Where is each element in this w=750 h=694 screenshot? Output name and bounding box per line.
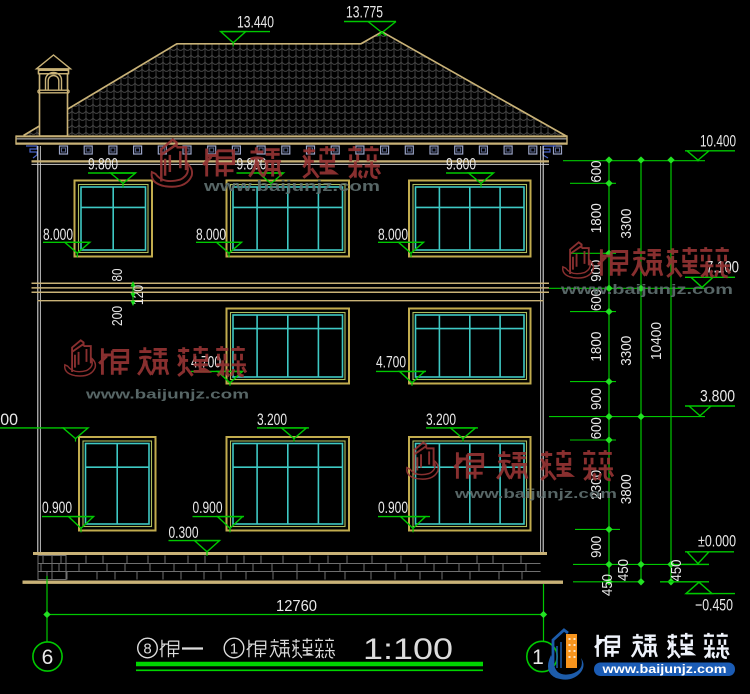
svg-text:8.000: 8.000 (43, 226, 73, 244)
svg-text:3.200: 3.200 (257, 411, 287, 429)
svg-text:0.300: 0.300 (169, 524, 199, 542)
svg-text:3.800: 3.800 (700, 388, 735, 406)
svg-text:450: 450 (615, 559, 632, 581)
svg-text:0.900: 0.900 (42, 499, 72, 517)
svg-text:600: 600 (588, 161, 605, 183)
svg-text:9.800: 9.800 (446, 156, 476, 174)
svg-text:3300: 3300 (618, 209, 635, 239)
svg-text:13.440: 13.440 (237, 14, 274, 32)
svg-text:0.900: 0.900 (378, 499, 408, 517)
svg-text:3800: 3800 (618, 474, 635, 504)
svg-text:900: 900 (588, 536, 605, 558)
svg-text:8.000: 8.000 (378, 226, 408, 244)
svg-text:900: 900 (588, 388, 605, 410)
svg-text:−0.450: −0.450 (695, 597, 733, 615)
svg-text:450: 450 (599, 574, 616, 596)
svg-text:600: 600 (588, 417, 605, 439)
svg-text:www.baijunjz.com: www.baijunjz.com (85, 387, 249, 402)
svg-text:10.400: 10.400 (700, 133, 736, 151)
svg-text:4.700: 4.700 (376, 354, 406, 372)
svg-text:8: 8 (143, 641, 151, 658)
svg-text:13.775: 13.775 (346, 4, 383, 22)
svg-text:±0.000: ±0.000 (698, 533, 736, 551)
svg-text:9.800: 9.800 (88, 156, 118, 174)
svg-text:10400: 10400 (648, 322, 665, 360)
svg-text:3300: 3300 (618, 336, 635, 366)
svg-text:1800: 1800 (588, 203, 605, 233)
svg-text:www.baijunjz.com: www.baijunjz.com (203, 179, 380, 195)
svg-text:0.900: 0.900 (193, 499, 223, 517)
svg-text:200: 200 (110, 306, 126, 326)
svg-text:www.baijunjz.com: www.baijunjz.com (601, 664, 726, 676)
svg-text:www.baijunjz.com: www.baijunjz.com (454, 486, 617, 501)
svg-text:www.baijunjz.com: www.baijunjz.com (560, 282, 733, 297)
svg-text:3.200: 3.200 (426, 411, 456, 429)
svg-text:80: 80 (110, 269, 126, 282)
svg-text:1: 1 (230, 641, 238, 658)
svg-text:8.000: 8.000 (196, 226, 226, 244)
svg-text:1:100: 1:100 (363, 633, 453, 666)
svg-text:1: 1 (532, 646, 544, 669)
svg-text:3.200: 3.200 (0, 411, 18, 429)
svg-text:1800: 1800 (588, 332, 605, 362)
svg-text:450: 450 (668, 560, 685, 582)
svg-text:6: 6 (42, 646, 54, 669)
svg-text:12760: 12760 (276, 598, 317, 615)
